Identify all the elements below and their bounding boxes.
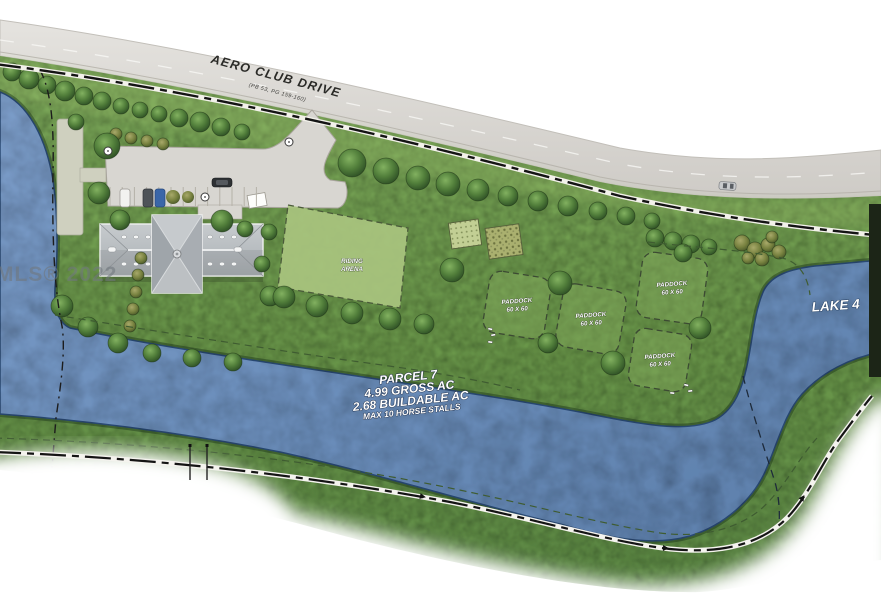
tree-icon: [273, 286, 295, 308]
tree-icon: [414, 314, 434, 334]
riding-arena-label-line2: ARENA: [340, 266, 364, 273]
tree-icon: [261, 224, 277, 240]
tree-icon: [170, 109, 188, 127]
barn-center-cross-roof: [152, 215, 202, 293]
gravel-plot: [485, 224, 523, 259]
tree-icon: [406, 166, 430, 190]
tree-icon: [68, 114, 84, 130]
parking-island-shrub-icon: [166, 190, 180, 204]
shrub-icon: [766, 231, 778, 243]
shrub-icon: [742, 252, 754, 264]
tree-icon: [601, 351, 625, 375]
parking-island-shrub-icon: [182, 191, 194, 203]
tree-icon: [306, 295, 328, 317]
tree-icon: [589, 202, 607, 220]
shrub-icon: [127, 303, 139, 315]
tree-icon: [436, 172, 460, 196]
tree-icon: [646, 229, 664, 247]
tree-icon: [151, 106, 167, 122]
tree-icon: [440, 258, 464, 282]
tree-icon: [234, 124, 250, 140]
tree-icon: [701, 239, 717, 255]
right-edge-dark-bar: [869, 204, 881, 377]
tree-icon: [338, 149, 366, 177]
tree-icon: [51, 295, 73, 317]
tree-icon: [212, 118, 230, 136]
longe-strip-branch: [80, 168, 106, 182]
riding-arena-label-line1: RIDING: [341, 258, 363, 265]
tree-icon: [190, 112, 210, 132]
tree-icon: [93, 92, 111, 110]
tree-icon: [55, 81, 75, 101]
tree-icon: [78, 317, 98, 337]
tree-icon: [211, 210, 233, 232]
tree-icon: [237, 221, 253, 237]
tree-icon: [75, 87, 93, 105]
shrub-icon: [125, 132, 137, 144]
tree-icon: [528, 191, 548, 211]
tree-icon: [373, 158, 399, 184]
tree-icon: [467, 179, 489, 201]
suv-in-lot-icon: [212, 178, 232, 187]
paddock-4: PADDOCK 60 X 60: [627, 327, 693, 393]
longe-strip-pavement: [57, 119, 83, 235]
parked-car-white-icon: [120, 189, 130, 207]
shrub-icon: [130, 286, 142, 298]
parked-car-blue-icon: [155, 189, 165, 207]
tree-icon: [224, 353, 242, 371]
shrub-icon: [135, 252, 147, 264]
tree-icon: [110, 210, 130, 230]
utility-pad: [247, 193, 267, 209]
tree-icon: [143, 344, 161, 362]
car-on-road-icon: [719, 181, 737, 190]
paddock-3: PADDOCK 60 X 60: [635, 251, 710, 326]
tree-icon: [558, 196, 578, 216]
site-plan-image: RIDING ARENA PADDOCK 60 X 60 PADDOCK 60 …: [0, 0, 881, 605]
tree-icon: [38, 76, 56, 94]
tree-icon: [108, 333, 128, 353]
shrub-icon: [141, 135, 153, 147]
tree-icon: [183, 349, 201, 367]
tree-icon: [132, 102, 148, 118]
tree-icon: [538, 333, 558, 353]
tree-icon: [379, 308, 401, 330]
tree-icon: [88, 182, 110, 204]
mls-watermark: MLS® 2022: [0, 263, 117, 286]
tree-icon: [548, 271, 572, 295]
tree-icon: [644, 213, 660, 229]
shrub-icon: [157, 138, 169, 150]
tree-icon: [689, 317, 711, 339]
tree-icon: [254, 256, 270, 272]
tree-icon: [113, 98, 129, 114]
shrub-icon: [132, 269, 144, 281]
tree-icon: [617, 207, 635, 225]
tree-icon: [341, 302, 363, 324]
shrub-icon: [124, 320, 136, 332]
tree-icon: [498, 186, 518, 206]
parked-car-dark-icon: [143, 189, 153, 207]
sand-plot: [448, 219, 481, 249]
